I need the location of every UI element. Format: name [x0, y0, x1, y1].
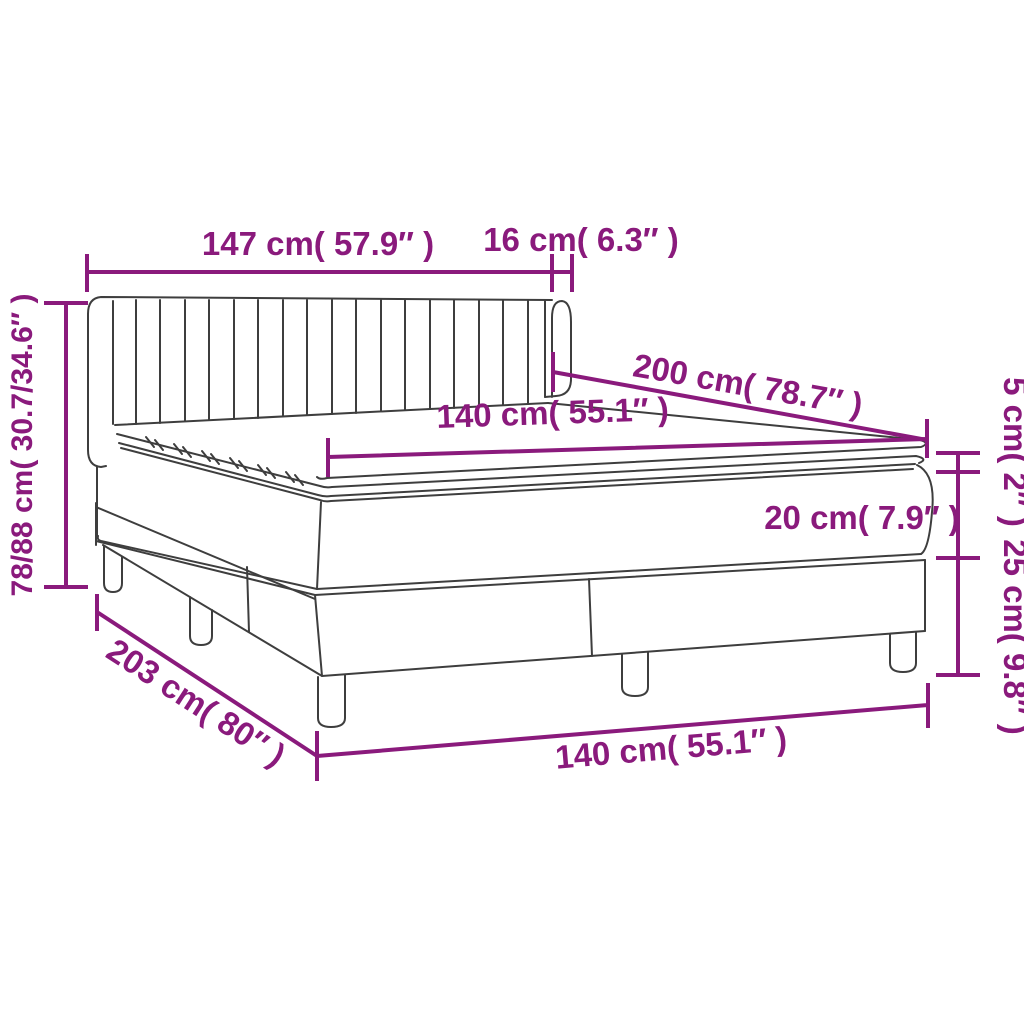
dim-total-length: 203 cm( 80″ )	[97, 594, 317, 781]
box-front-left-corner	[315, 595, 322, 676]
dimension-diagram: 147 cm( 57.9″ ) 16 cm( 6.3″ ) 78/88 cm( …	[0, 0, 1024, 1024]
label-topper-height: 5 cm( 2″ )	[997, 377, 1024, 527]
mattress-bottom-edge	[98, 536, 921, 589]
headboard-left-ear	[88, 314, 106, 467]
label-mattress-height: 20 cm( 7.9″ )	[764, 499, 960, 536]
mattress-front-left-corner	[317, 502, 321, 589]
dim-headboard-width: 147 cm( 57.9″ ) 16 cm( 6.3″ )	[87, 221, 679, 292]
dim-bed-width: 140 cm( 55.1″ )	[317, 683, 928, 776]
dim-total-height: 78/88 cm( 30.7/34.6″ )	[6, 294, 88, 597]
dim-line-total-height	[44, 303, 88, 587]
label-base-height: 25 cm( 9.8″ )	[997, 539, 1024, 735]
label-mattress-width: 140 cm( 55.1″ )	[436, 390, 669, 435]
headboard-top-edge	[88, 297, 552, 314]
box-side-top-edge	[96, 507, 315, 599]
bed-leg	[104, 546, 122, 592]
bed-leg	[890, 632, 916, 672]
label-headboard-depth: 16 cm( 6.3″ )	[483, 221, 679, 258]
label-total-height: 78/88 cm( 30.7/34.6″ )	[6, 294, 39, 597]
diagram-canvas: 147 cm( 57.9″ ) 16 cm( 6.3″ ) 78/88 cm( …	[0, 0, 1024, 1024]
headboard-right-ear	[545, 301, 571, 397]
label-headboard-width: 147 cm( 57.9″ )	[202, 225, 434, 262]
box-bottom-edge	[103, 545, 925, 676]
dim-line-height-stack	[936, 453, 980, 675]
bed-leg	[622, 652, 648, 696]
box-foot-seam	[589, 579, 592, 656]
box-side-seam	[247, 567, 249, 632]
label-total-length: 203 cm( 80″ )	[100, 631, 292, 774]
bed-leg	[318, 675, 345, 727]
